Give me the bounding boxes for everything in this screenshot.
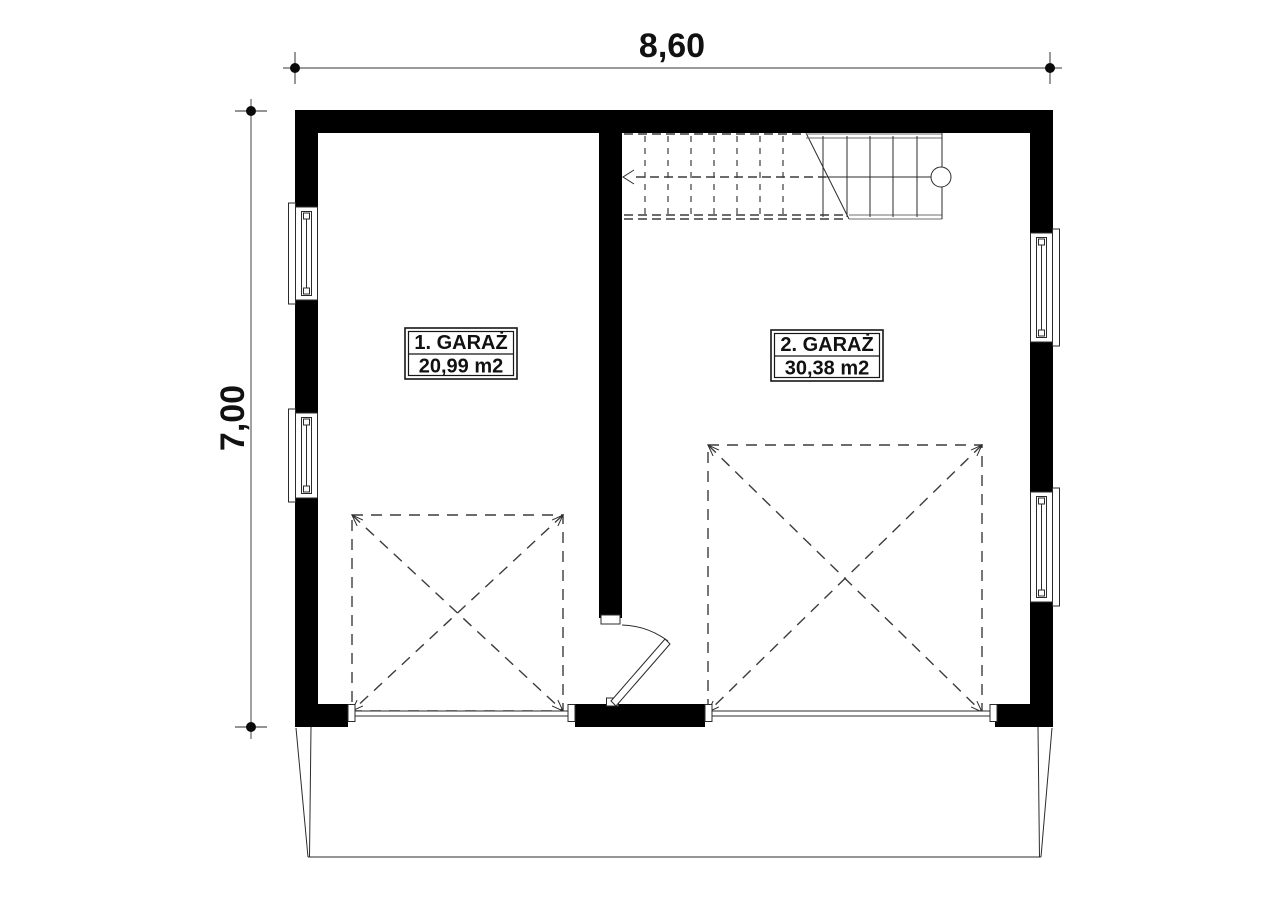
window-left-1 (289, 203, 318, 304)
dimension-top-value: 8,60 (639, 27, 705, 65)
room-2-name: 2. GARAŻ (780, 333, 873, 356)
window-left-2 (289, 409, 318, 502)
floor-plan-page: 8,60 7,00 (0, 0, 1280, 905)
room-2-area: 30,38 m2 (785, 358, 870, 380)
room-1-name: 1. GARAŻ (414, 331, 507, 354)
window-right-1 (1031, 229, 1060, 346)
stair-newel-post (931, 167, 951, 187)
staircase (623, 133, 951, 219)
parking-space-2 (708, 445, 982, 712)
stair-direction-arrow (623, 170, 634, 184)
dimension-top: 8,60 (283, 27, 1062, 84)
floor-plan: 8,60 7,00 (0, 0, 1280, 905)
window-right-2 (1031, 488, 1060, 606)
dimension-left: 7,00 (214, 99, 267, 739)
walls (295, 110, 1053, 727)
driveway-apron (296, 727, 1052, 857)
dimension-left-value: 7,00 (214, 385, 252, 451)
room-1-area: 20,99 m2 (419, 356, 504, 378)
interior-door (601, 615, 670, 706)
garage-door-2-threshold (705, 705, 997, 722)
garage-door-1-threshold (348, 705, 575, 722)
parking-space-1 (352, 515, 563, 711)
room-label-garage-1: 1. GARAŻ 20,99 m2 (405, 328, 517, 379)
room-label-garage-2: 2. GARAŻ 30,38 m2 (771, 330, 883, 381)
